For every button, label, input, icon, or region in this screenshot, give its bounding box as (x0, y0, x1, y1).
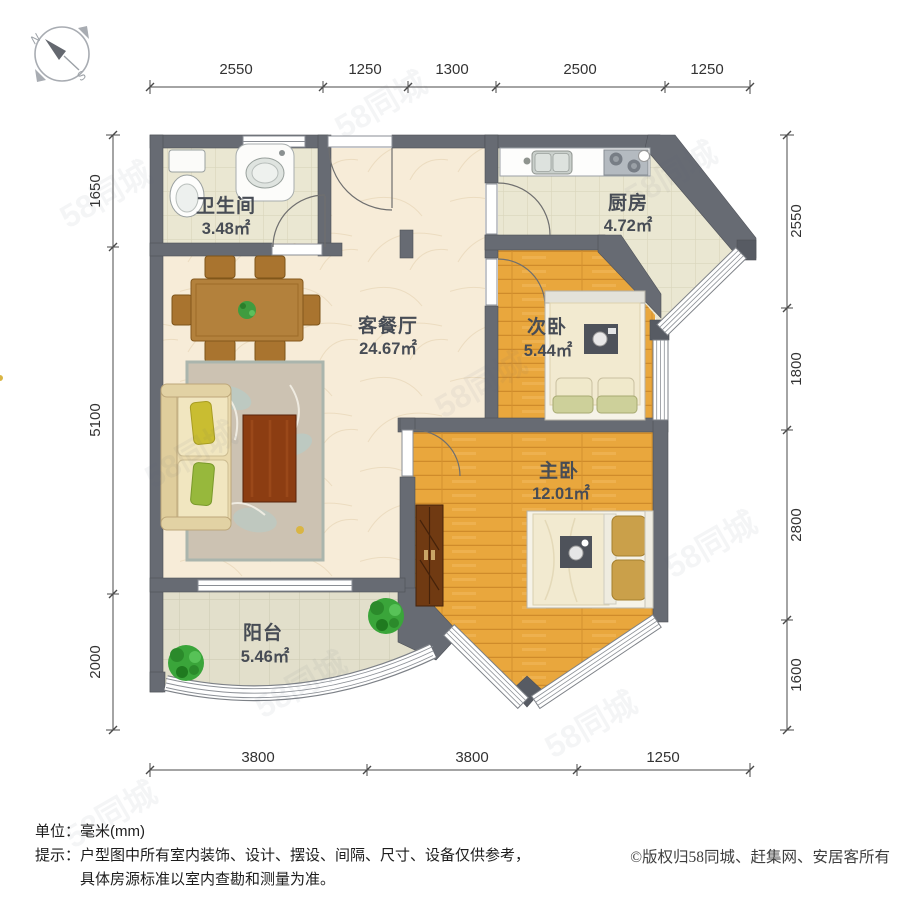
bedroom2-door-threshold (486, 259, 497, 305)
unit-label: 单位： (35, 823, 80, 840)
living-label: 客餐厅 (358, 314, 418, 337)
bedroom1-label: 主卧 (539, 460, 579, 482)
wardrobe (416, 505, 443, 606)
copyright-note: ©版权归58同城、赶集网、安居客所有 (630, 845, 890, 867)
dim-right-1: 2550 (788, 204, 805, 237)
dim-left-2: 5100 (87, 403, 104, 436)
bedroom2-area: 5.44㎡ (524, 340, 573, 360)
dim-top-3: 1300 (435, 61, 468, 78)
dim-bottom-3: 1250 (646, 749, 679, 766)
compass-south-label: S (74, 68, 89, 84)
balcony-area: 5.46㎡ (241, 646, 290, 666)
sofa (161, 384, 231, 530)
dim-right-2: 1800 (788, 352, 805, 385)
dim-top (146, 80, 754, 94)
unit-note: 单位：毫米(mm) (35, 820, 530, 844)
bathroom-area: 3.48㎡ (202, 218, 251, 238)
bedroom1-area: 12.01㎡ (532, 483, 590, 503)
tip-note: 提示： 户型图中所有室内装饰、设计、摆设、间隔、尺寸、设备仅供参考， 具体房源标… (35, 844, 530, 892)
dim-right-3: 2800 (788, 508, 805, 541)
kitchen-label: 厨房 (608, 191, 648, 214)
unit-value: 毫米(mm) (80, 823, 145, 840)
bedroom2-label: 次卧 (527, 315, 567, 338)
plant-icon (168, 645, 204, 681)
footer-notes: 单位：毫米(mm) 提示： 户型图中所有室内装饰、设计、摆设、间隔、尺寸、设备仅… (35, 820, 530, 892)
tip-line1: 户型图中所有室内装饰、设计、摆设、间隔、尺寸、设备仅供参考， (80, 847, 530, 864)
dim-bottom-2: 3800 (455, 749, 488, 766)
dim-top-5: 1250 (690, 61, 723, 78)
tip-body: 户型图中所有室内装饰、设计、摆设、间隔、尺寸、设备仅供参考， 具体房源标准以室内… (80, 844, 530, 892)
dim-left-1: 1650 (87, 174, 104, 207)
dim-top-2: 1250 (348, 61, 381, 78)
bathroom-door-threshold (272, 244, 322, 255)
bedroom1-door-threshold (402, 430, 413, 476)
compass-icon: N S (28, 26, 89, 84)
floorplan-page: 卫生间 3.48㎡ 厨房 4.72㎡ 客餐厅 24.67㎡ 次卧 5.44㎡ 主… (0, 0, 900, 900)
balcony-door-window (198, 580, 352, 591)
dim-right-4: 1600 (788, 658, 805, 691)
tip-label: 提示： (35, 844, 80, 892)
floorplan-drawing: 卫生间 3.48㎡ 厨房 4.72㎡ 客餐厅 24.67㎡ 次卧 5.44㎡ 主… (0, 0, 900, 900)
dim-top-1: 2550 (219, 61, 252, 78)
bedroom1-bed (527, 511, 653, 608)
living-area: 24.67㎡ (359, 338, 417, 358)
dim-left (106, 131, 120, 734)
dim-bottom-1: 3800 (241, 749, 274, 766)
dim-top-4: 2500 (563, 61, 596, 78)
plant-icon (368, 598, 404, 634)
bathroom-label: 卫生间 (196, 194, 256, 217)
kitchen-area: 4.72㎡ (604, 215, 653, 235)
balcony-label: 阳台 (243, 621, 283, 644)
washbasin-icon (236, 144, 294, 201)
bedroom2-window (653, 340, 668, 420)
coffee-table (243, 415, 296, 502)
kitchen-door-threshold (486, 184, 497, 234)
entry-door-threshold (328, 136, 392, 147)
dim-left-3: 2000 (87, 645, 104, 678)
kitchen-counter (500, 148, 650, 176)
compass-north-label: N (28, 31, 44, 48)
tip-line2: 具体房源标准以室内查勘和测量为准。 (80, 871, 335, 888)
